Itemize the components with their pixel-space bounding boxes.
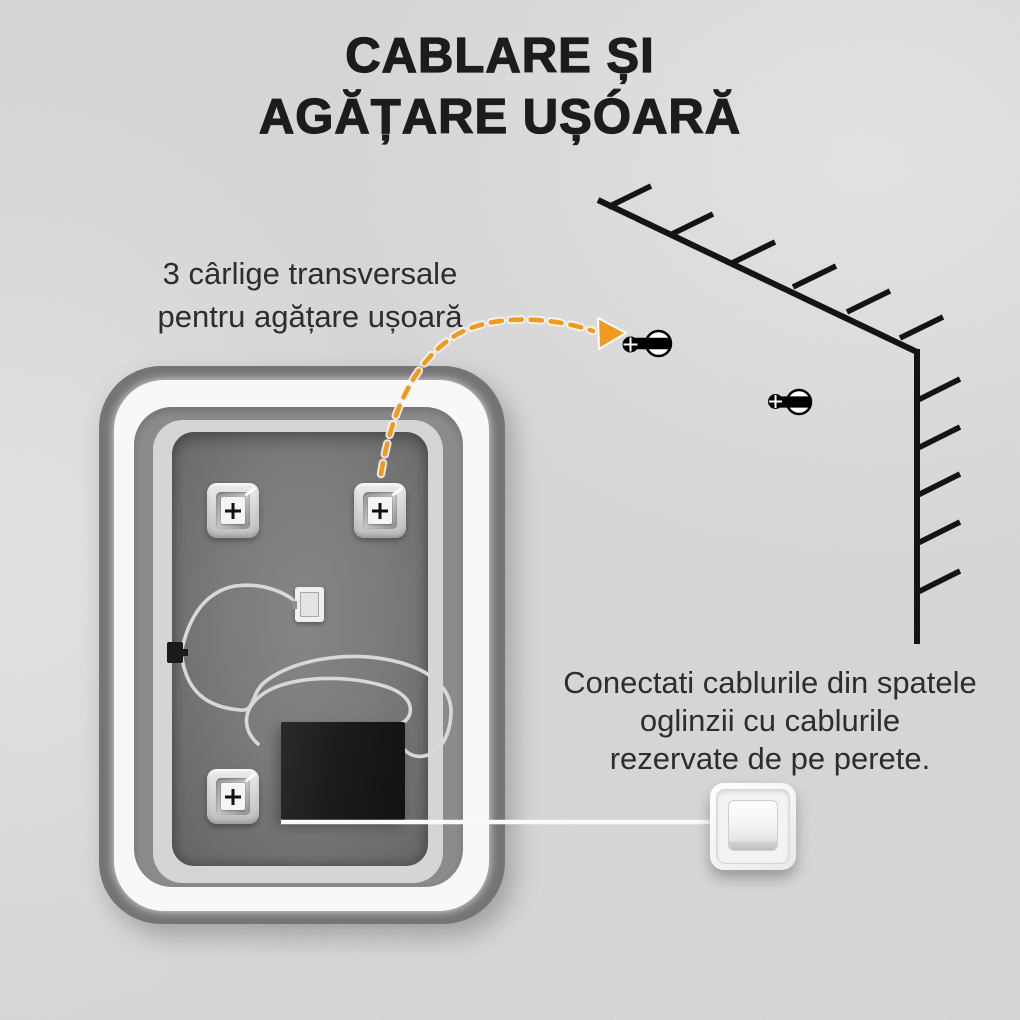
hooks-note: 3 cârlige transversale pentru agățare uș… [60, 252, 560, 338]
cable-gland-icon [167, 642, 183, 663]
hook-plus-mark [221, 783, 245, 810]
hook-bevel [216, 778, 250, 815]
hooks-note-line-1: 3 cârlige transversale [60, 252, 560, 295]
hooks-note-line-2: pentru agățare ușoară [60, 295, 560, 338]
hook-bevel [363, 492, 397, 529]
mounting-hook-bottom-left-icon [207, 769, 259, 824]
cables-note-line-2: oglinzii cu cablurile [540, 702, 1000, 740]
wall-hatch-ticks [608, 186, 960, 592]
screw-anchor-icon-2 [768, 390, 811, 414]
title-line-2: AGĂȚARE UȘÓARĂ [0, 87, 1010, 148]
cables-note-line-3: rezervate de pe perete. [540, 740, 1000, 778]
screw-anchor-icon-1 [623, 331, 672, 356]
connector-inner-face [300, 592, 319, 617]
hook-shine [391, 486, 403, 496]
mounting-hook-top-left-icon [207, 483, 259, 538]
title-line-1: CABLARE ȘI [0, 26, 1010, 87]
junction-box-icon [281, 722, 405, 820]
hook-shine [244, 772, 256, 782]
cable-connector-icon [295, 587, 324, 622]
page-title: CABLARE ȘI AGĂȚARE UȘÓARĂ [0, 26, 1010, 148]
cables-note: Conectati cablurile din spatele oglinzii… [540, 664, 1000, 778]
hook-shine [244, 486, 256, 496]
hook-bevel [216, 492, 250, 529]
wall-corner-diagonal-line [598, 200, 917, 352]
hook-plus-mark [221, 497, 245, 524]
arrow-head-icon [598, 318, 626, 349]
switch-frame [716, 789, 790, 864]
hook-plus-mark [368, 497, 392, 524]
wall-corner-icon [598, 186, 960, 644]
cables-note-line-1: Conectati cablurile din spatele [540, 664, 1000, 702]
infographic-canvas: CABLARE ȘI AGĂȚARE UȘÓARĂ 3 cârlige tran… [0, 0, 1020, 1020]
mounting-hook-top-right-icon [354, 483, 406, 538]
switch-rocker-lip [729, 841, 777, 850]
light-switch-icon [710, 783, 796, 870]
switch-rocker [728, 800, 778, 851]
